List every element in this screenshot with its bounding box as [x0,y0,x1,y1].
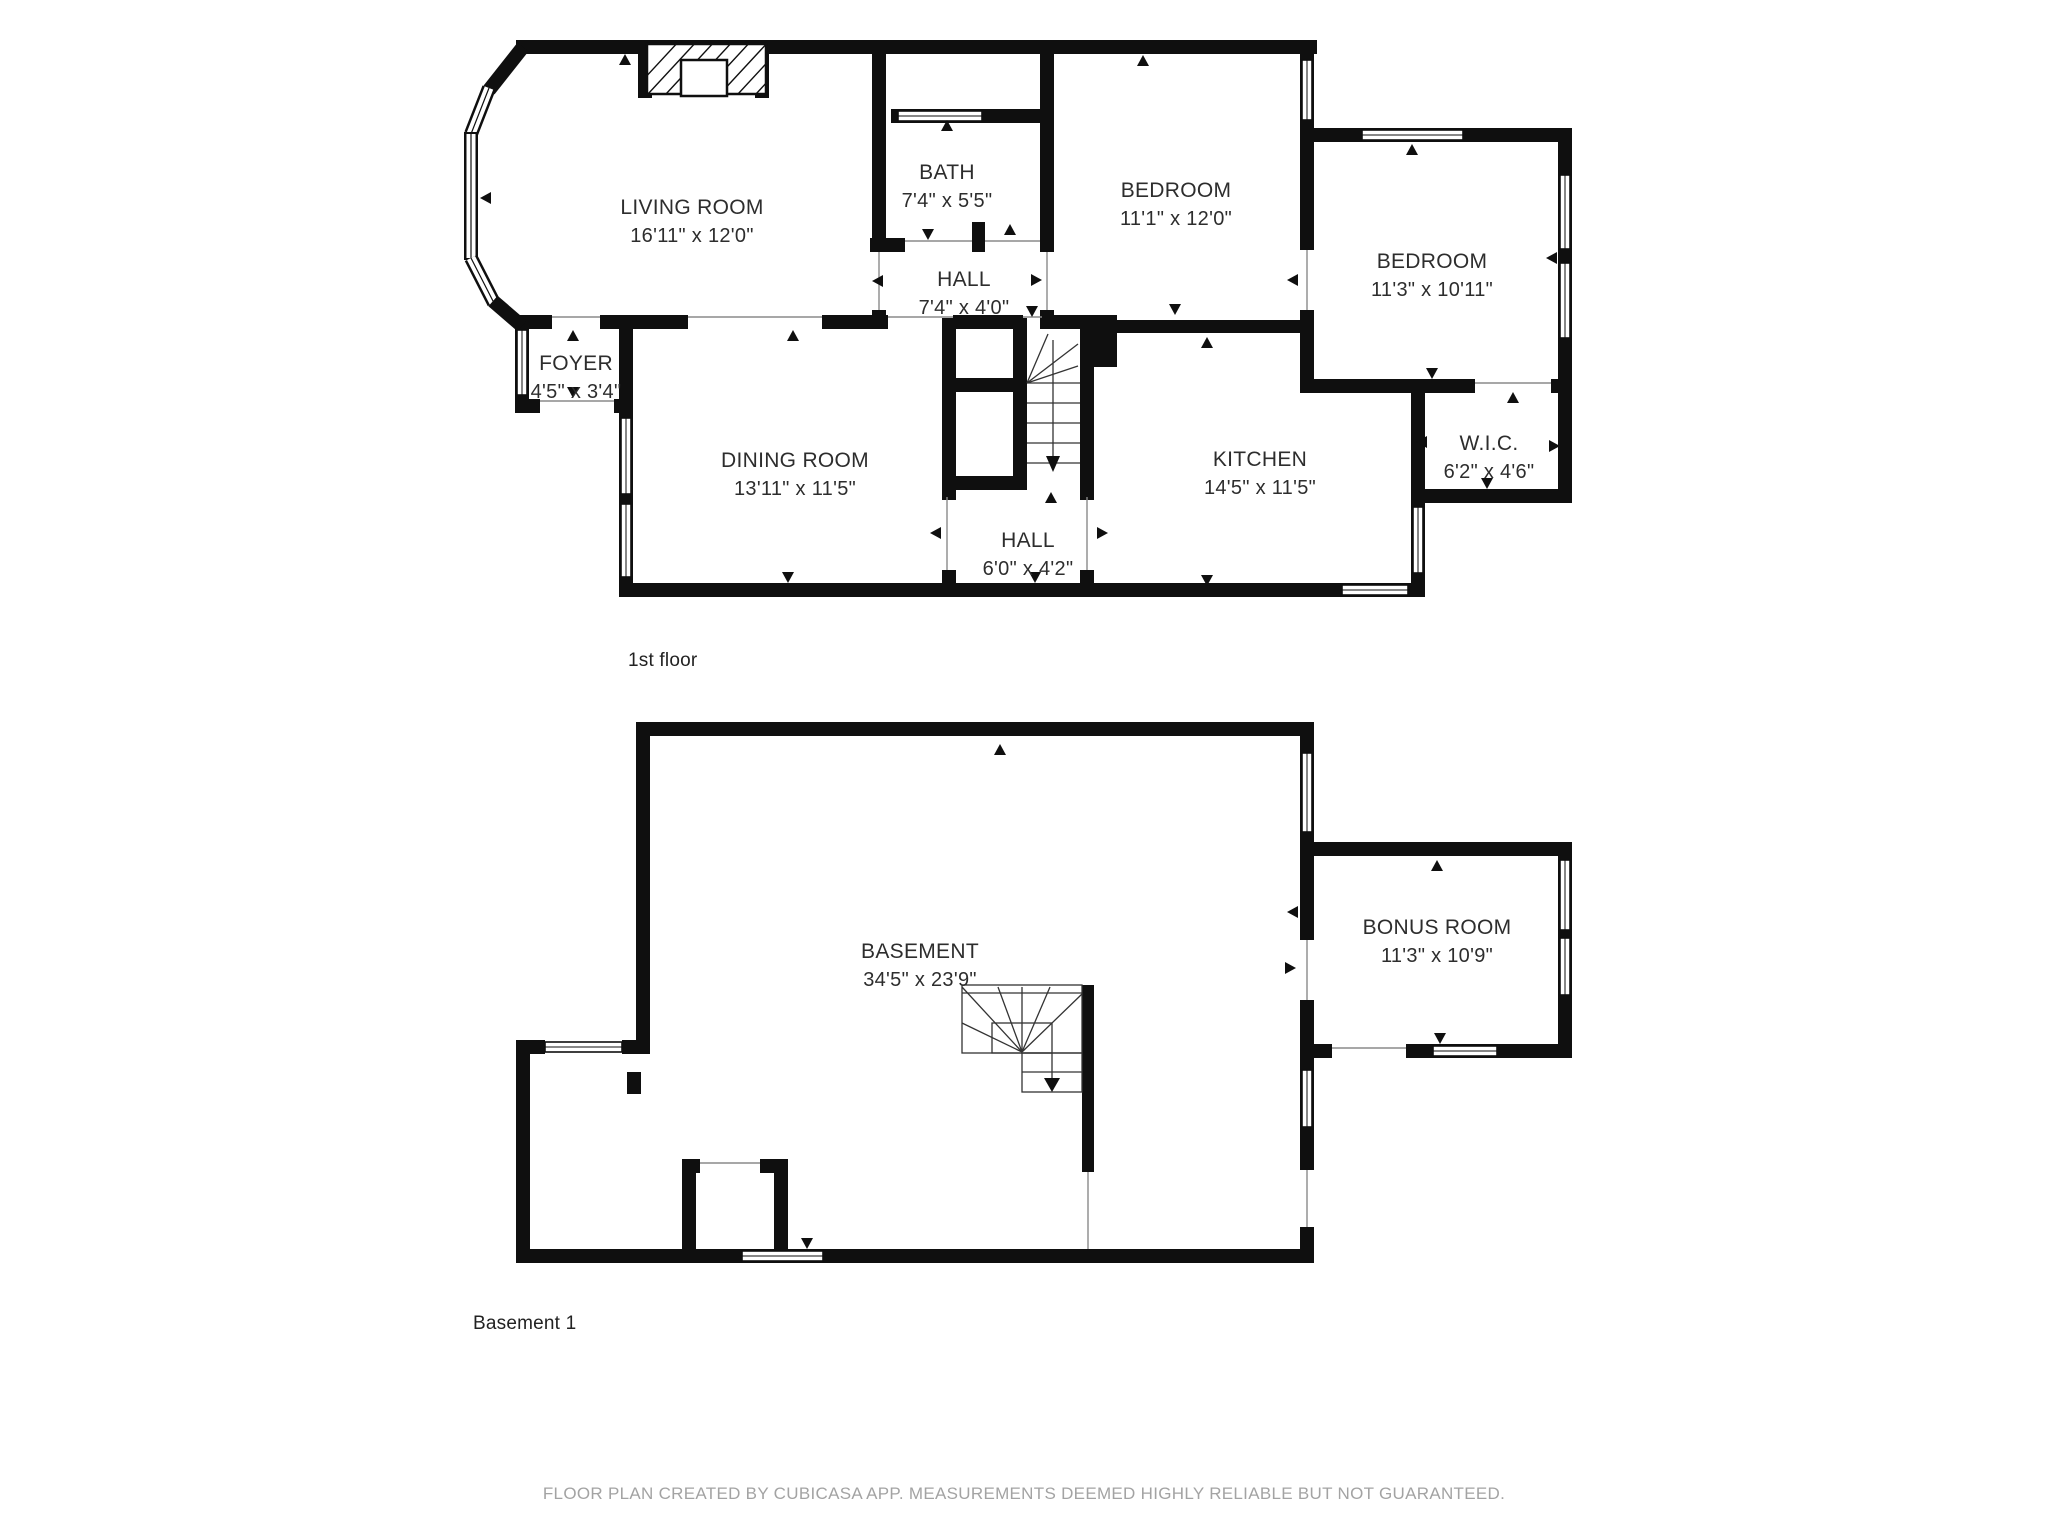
room-dims: 11'3" x 10'11" [1371,279,1493,301]
window-icon [1433,1046,1497,1056]
room-name: BASEMENT [861,940,979,963]
room-label-bonus-room: BONUS ROOM 11'3" x 10'9" [1363,914,1512,970]
floor-plan-drawing [0,0,2048,1536]
stairs-icon [1027,334,1080,472]
room-dims: 34'5" x 23'9" [863,969,977,991]
basement-windows [545,753,1570,1261]
room-name: HALL [1001,529,1055,552]
room-name: BONUS ROOM [1363,916,1512,939]
door-direction-marker-icon [801,744,1446,1249]
floor-title-basement-1: Basement 1 [473,1313,576,1335]
room-name: FOYER [539,352,613,375]
window-icon [1362,130,1463,140]
room-label-foyer: FOYER 4'5" x 3'4" [531,350,622,406]
room-name: BEDROOM [1121,179,1232,202]
window-icon [1560,263,1570,338]
first-floor-plan [471,40,1572,597]
room-label-kitchen: KITCHEN 14'5" x 11'5" [1204,446,1316,502]
room-label-bedroom-2: BEDROOM 11'3" x 10'11" [1371,248,1493,304]
room-dims: 4'5" x 3'4" [531,381,622,403]
window-icon [1302,60,1312,120]
room-label-basement: BASEMENT 34'5" x 23'9" [861,938,979,994]
window-icon [517,330,527,395]
room-label-bedroom-1: BEDROOM 11'1" x 12'0" [1120,177,1232,233]
room-label-dining-room: DINING ROOM 13'11" x 11'5" [721,447,869,503]
window-icon [1342,585,1408,595]
floor-plan-page: LIVING ROOM 16'11" x 12'0" BATH 7'4" x 5… [0,0,2048,1536]
room-dims: 11'3" x 10'9" [1381,945,1493,967]
room-dims: 14'5" x 11'5" [1204,477,1316,499]
room-dims: 11'1" x 12'0" [1120,208,1232,230]
window-icon [1560,860,1570,930]
window-icon [621,504,631,577]
window-icon [1302,753,1312,832]
room-label-wic: W.I.C. 6'2" x 4'6" [1444,430,1535,486]
room-label-hall-lower: HALL 6'0" x 4'2" [983,527,1074,583]
room-dims: 7'4" x 5'5" [902,190,993,212]
room-name: BEDROOM [1377,250,1488,273]
room-name: DINING ROOM [721,449,869,472]
window-icon [1413,507,1423,573]
room-name: W.I.C. [1460,432,1519,455]
floor-title-1st-floor: 1st floor [628,650,697,672]
room-name: BATH [919,161,975,184]
footer-disclaimer: FLOOR PLAN CREATED BY CUBICASA APP. MEAS… [0,1484,2048,1504]
room-dims: 6'2" x 4'6" [1444,461,1535,483]
window-icon [621,418,631,494]
room-dims: 16'11" x 12'0" [630,225,754,247]
window-icon [742,1251,823,1261]
room-dims: 6'0" x 4'2" [983,558,1074,580]
bay-window-icon [471,47,523,326]
room-label-hall-upper: HALL 7'4" x 4'0" [919,266,1010,322]
basement-plan [516,722,1572,1263]
window-icon [545,1042,622,1052]
window-icon [1302,1070,1312,1127]
room-dims: 7'4" x 4'0" [919,297,1010,319]
window-icon [898,111,982,121]
room-name: HALL [937,268,991,291]
window-icon [1560,938,1570,995]
stairs-icon [962,985,1082,1092]
room-label-living-room: LIVING ROOM 16'11" x 12'0" [620,194,763,250]
room-name: LIVING ROOM [620,196,763,219]
room-label-bath: BATH 7'4" x 5'5" [902,159,993,215]
window-icon [1560,175,1570,249]
room-name: KITCHEN [1213,448,1307,471]
room-dims: 13'11" x 11'5" [734,478,856,500]
